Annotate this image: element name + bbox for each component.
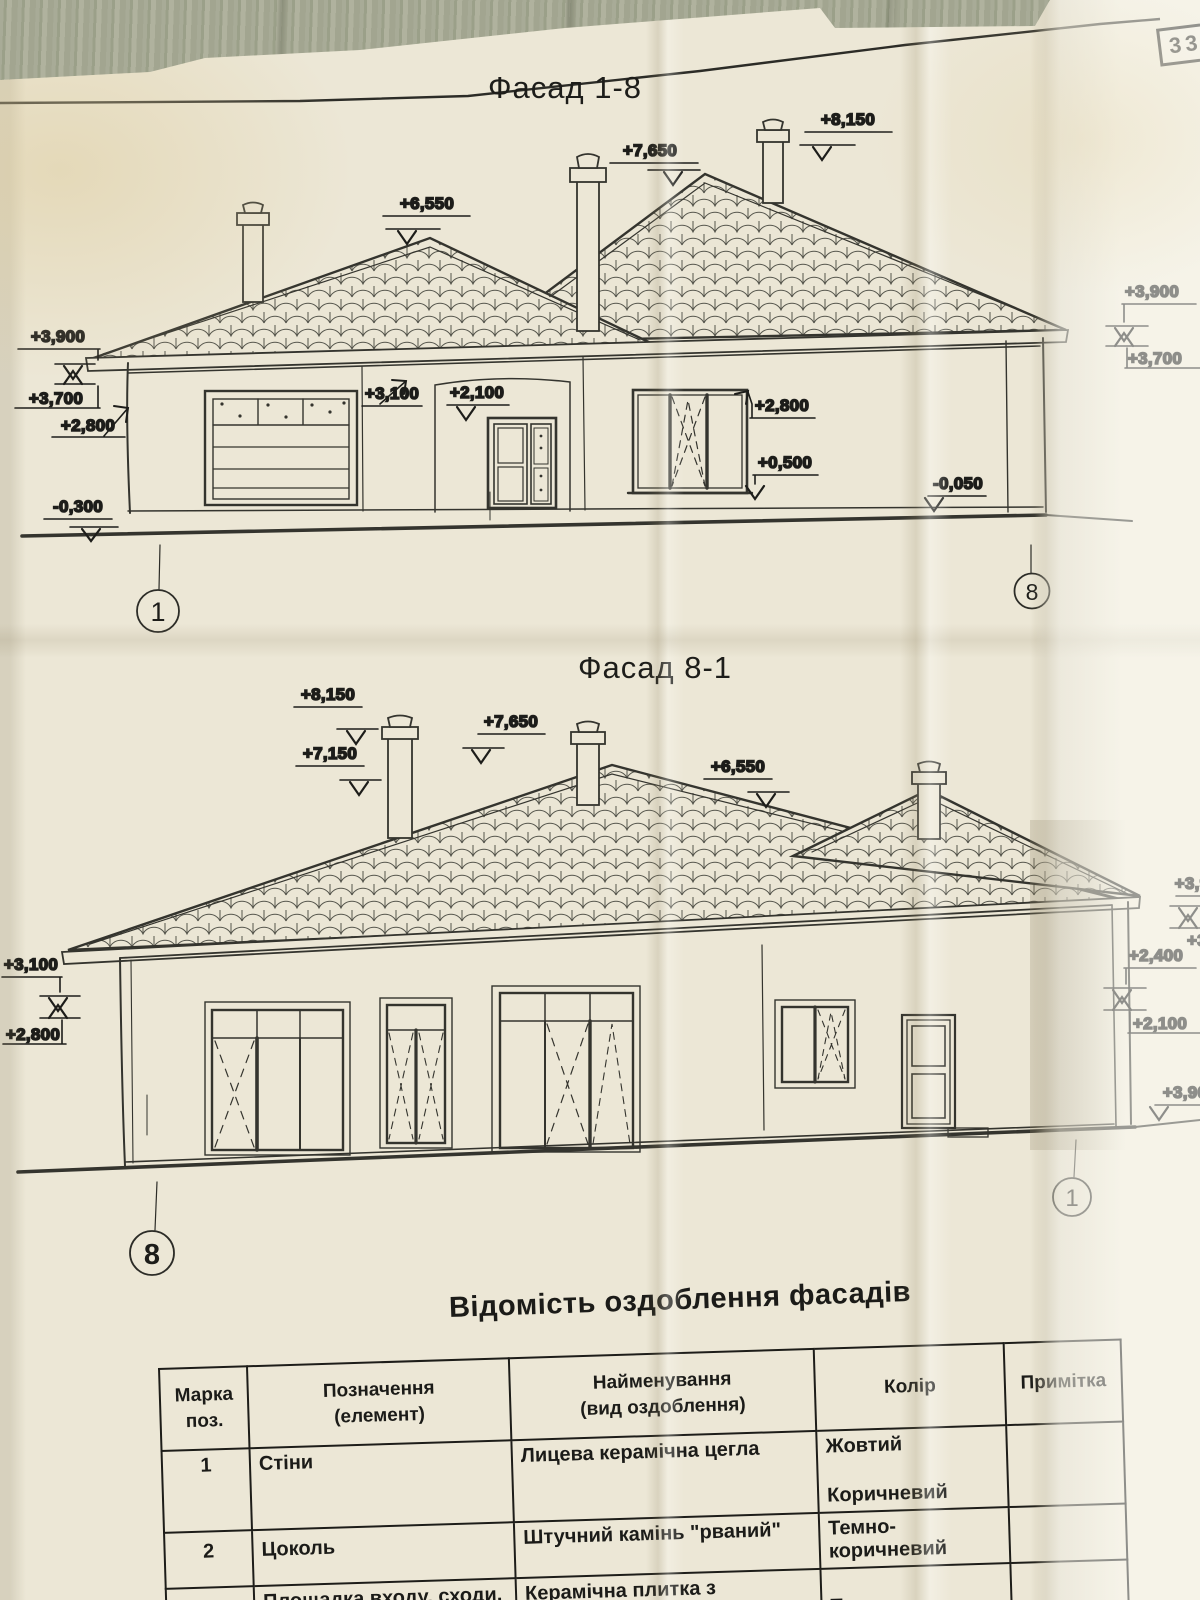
axis-8-right: 8 [1026, 579, 1039, 605]
header-note: Примітка [1004, 1340, 1123, 1426]
row3-color: Темно-коричневий [820, 1563, 1013, 1600]
dim2-r2400: +2,400 [1129, 946, 1183, 965]
header-name: Найменування(вид оздоблення) [509, 1349, 816, 1440]
dim2-r2100: +2,100 [1133, 1014, 1187, 1033]
row2-color: Темно-коричневий [819, 1507, 1011, 1569]
header-mark: Маркапоз. [159, 1366, 249, 1451]
dim-w0500: +0,500 [758, 453, 812, 472]
dim2-7650: +7,650 [484, 712, 538, 731]
dim2-8150: +8,150 [301, 685, 355, 704]
row2-num: 2 [164, 1530, 254, 1589]
axis-1-left: 1 [150, 597, 165, 627]
header-color: Колір [814, 1343, 1006, 1431]
dim2-6550: +6,550 [711, 757, 765, 776]
facade1-title: Фасад 1-8 [488, 70, 642, 105]
row1-num: 1 [162, 1448, 252, 1533]
dim2-r390: +3,90 [1163, 1083, 1200, 1102]
dim-l3700: +3,700 [29, 389, 83, 408]
sheet-number: 33 [1168, 30, 1200, 60]
facade2-window-1 [205, 1002, 350, 1155]
dim-l0300: -0,300 [53, 497, 103, 516]
photographed-blueprint-page: Фасад 1-8 [0, 0, 1200, 1600]
finishes-table: Маркапоз. Позначення(елемент) Найменуван… [158, 1339, 1130, 1600]
row1-colors: Жовтий Коричневий [816, 1425, 1008, 1513]
garage-door-rivets [220, 401, 345, 418]
dim2-7150: +7,150 [303, 744, 357, 763]
facade1-garage-door [205, 391, 357, 505]
dim-r3700: +3,700 [1128, 349, 1182, 368]
dim2-l3100: +3,100 [4, 955, 58, 974]
facade1-axis-markers: 1 8 [137, 545, 1050, 632]
facade2-window-3 [492, 986, 640, 1152]
facade2-title: Фасад 8-1 [578, 650, 732, 685]
facade-1-8: Фасад 1-8 [15, 70, 1200, 632]
facade2-roof [62, 765, 1140, 964]
row1-name: Лицева керамічна цегла [511, 1431, 818, 1522]
row2-element: Цоколь [252, 1522, 516, 1586]
dim-7650: +7,650 [623, 141, 677, 160]
facade-8-1: Фасад 8-1 [2, 650, 1200, 1275]
facade1-window [628, 390, 752, 493]
dim-r3900: +3,900 [1125, 282, 1179, 301]
dim-w2800: +2,800 [755, 396, 809, 415]
axis-1-right: 1 [1065, 1185, 1078, 1212]
facade2-door [902, 1015, 955, 1128]
row3-note [1010, 1559, 1130, 1600]
dim-2100: +2,100 [450, 383, 504, 402]
dim-8150: +8,150 [821, 110, 875, 129]
header-designation: Позначення(елемент) [247, 1358, 511, 1448]
row1-note [1006, 1422, 1125, 1508]
row2-note [1009, 1504, 1128, 1564]
dim-6550: +6,550 [400, 194, 454, 213]
dim2-rcut-a: +3,9 [1175, 874, 1200, 893]
dim-r0050: -0,050 [933, 474, 983, 493]
facade2-window-4 [775, 1000, 855, 1088]
dim2-l2800: +2,800 [6, 1025, 60, 1044]
axis-8-left: 8 [144, 1239, 160, 1271]
dim2-rcut-b: +3 [1187, 931, 1200, 950]
facade1-entry-door [488, 418, 556, 508]
row3-num: 3 [166, 1586, 257, 1600]
dim-l3900: +3,900 [31, 327, 85, 346]
row1-element: Стіни [249, 1440, 513, 1530]
facade2-window-2 [380, 998, 452, 1148]
row2-name: Штучний камінь "рваний" [514, 1513, 821, 1578]
